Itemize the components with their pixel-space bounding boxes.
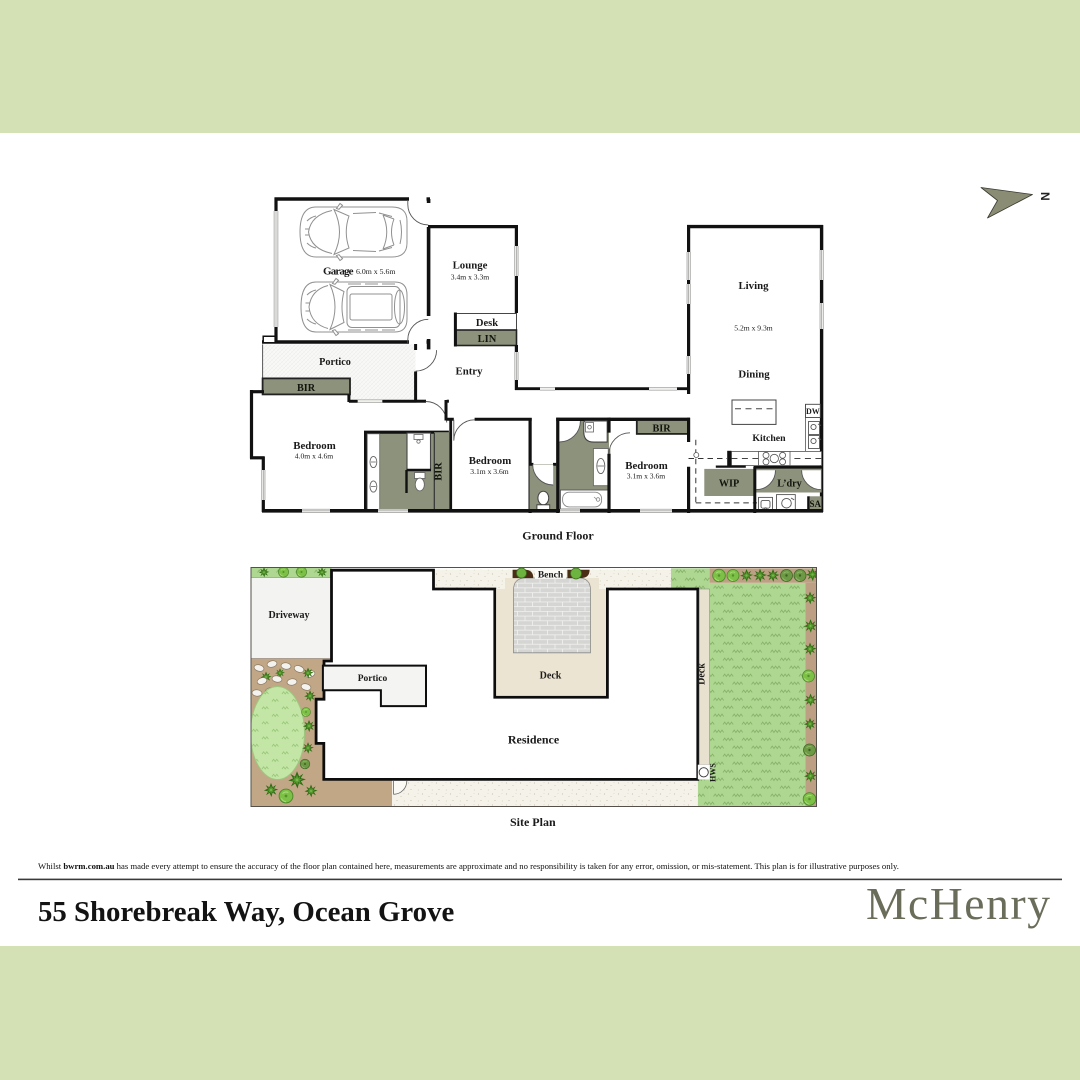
svg-text:3.1m x 3.6m: 3.1m x 3.6m [470, 467, 508, 476]
svg-text:Living: Living [738, 280, 769, 292]
svg-text:Bench: Bench [538, 571, 564, 581]
svg-text:Dining: Dining [738, 368, 770, 380]
svg-text:BIR: BIR [297, 383, 316, 394]
svg-text:Bedroom: Bedroom [625, 460, 667, 472]
svg-text:Site Plan: Site Plan [510, 815, 556, 829]
svg-text:3.1m x 3.6m: 3.1m x 3.6m [627, 472, 665, 481]
svg-text:Portico: Portico [358, 674, 388, 684]
svg-text:Lounge: Lounge [453, 260, 488, 272]
svg-text:HWS: HWS [709, 763, 718, 782]
svg-text:Ground Floor: Ground Floor [522, 529, 594, 543]
svg-text:L’dry: L’dry [777, 478, 802, 489]
svg-text:Residence: Residence [508, 733, 560, 747]
svg-text:3.4m x 3.3m: 3.4m x 3.3m [451, 273, 489, 282]
svg-text:LIN: LIN [478, 334, 497, 345]
svg-text:Bedroom: Bedroom [293, 440, 335, 452]
svg-text:Portico: Portico [319, 357, 351, 368]
svg-text:McHenry: McHenry [866, 878, 1052, 929]
svg-text:4.0m x 4.6m: 4.0m x 4.6m [295, 451, 333, 460]
svg-text:Deck: Deck [540, 670, 562, 681]
svg-text:Kitchen: Kitchen [752, 433, 786, 444]
svg-text:DW: DW [806, 407, 820, 416]
svg-text:Desk: Desk [476, 318, 498, 329]
svg-text:5.2m x 9.3m: 5.2m x 9.3m [734, 324, 772, 333]
svg-text:Bedroom: Bedroom [469, 455, 511, 467]
svg-text:SA: SA [810, 499, 822, 509]
svg-text:BIR: BIR [652, 424, 671, 435]
svg-text:55 Shorebreak Way, Ocean Grove: 55 Shorebreak Way, Ocean Grove [38, 896, 454, 928]
svg-text:Driveway: Driveway [268, 610, 309, 621]
svg-text:Entry: Entry [456, 366, 484, 378]
svg-text:WIP: WIP [719, 478, 739, 489]
svg-text:Deck: Deck [697, 663, 708, 685]
svg-text:BIR: BIR [434, 462, 445, 481]
svg-text:Garage: Garage [323, 266, 354, 278]
svg-text:6.0m x 5.6m: 6.0m x 5.6m [356, 267, 395, 276]
svg-text:N: N [1038, 192, 1052, 201]
svg-text:Whilst bwrm.com.au has made ev: Whilst bwrm.com.au has made every attemp… [38, 861, 899, 871]
